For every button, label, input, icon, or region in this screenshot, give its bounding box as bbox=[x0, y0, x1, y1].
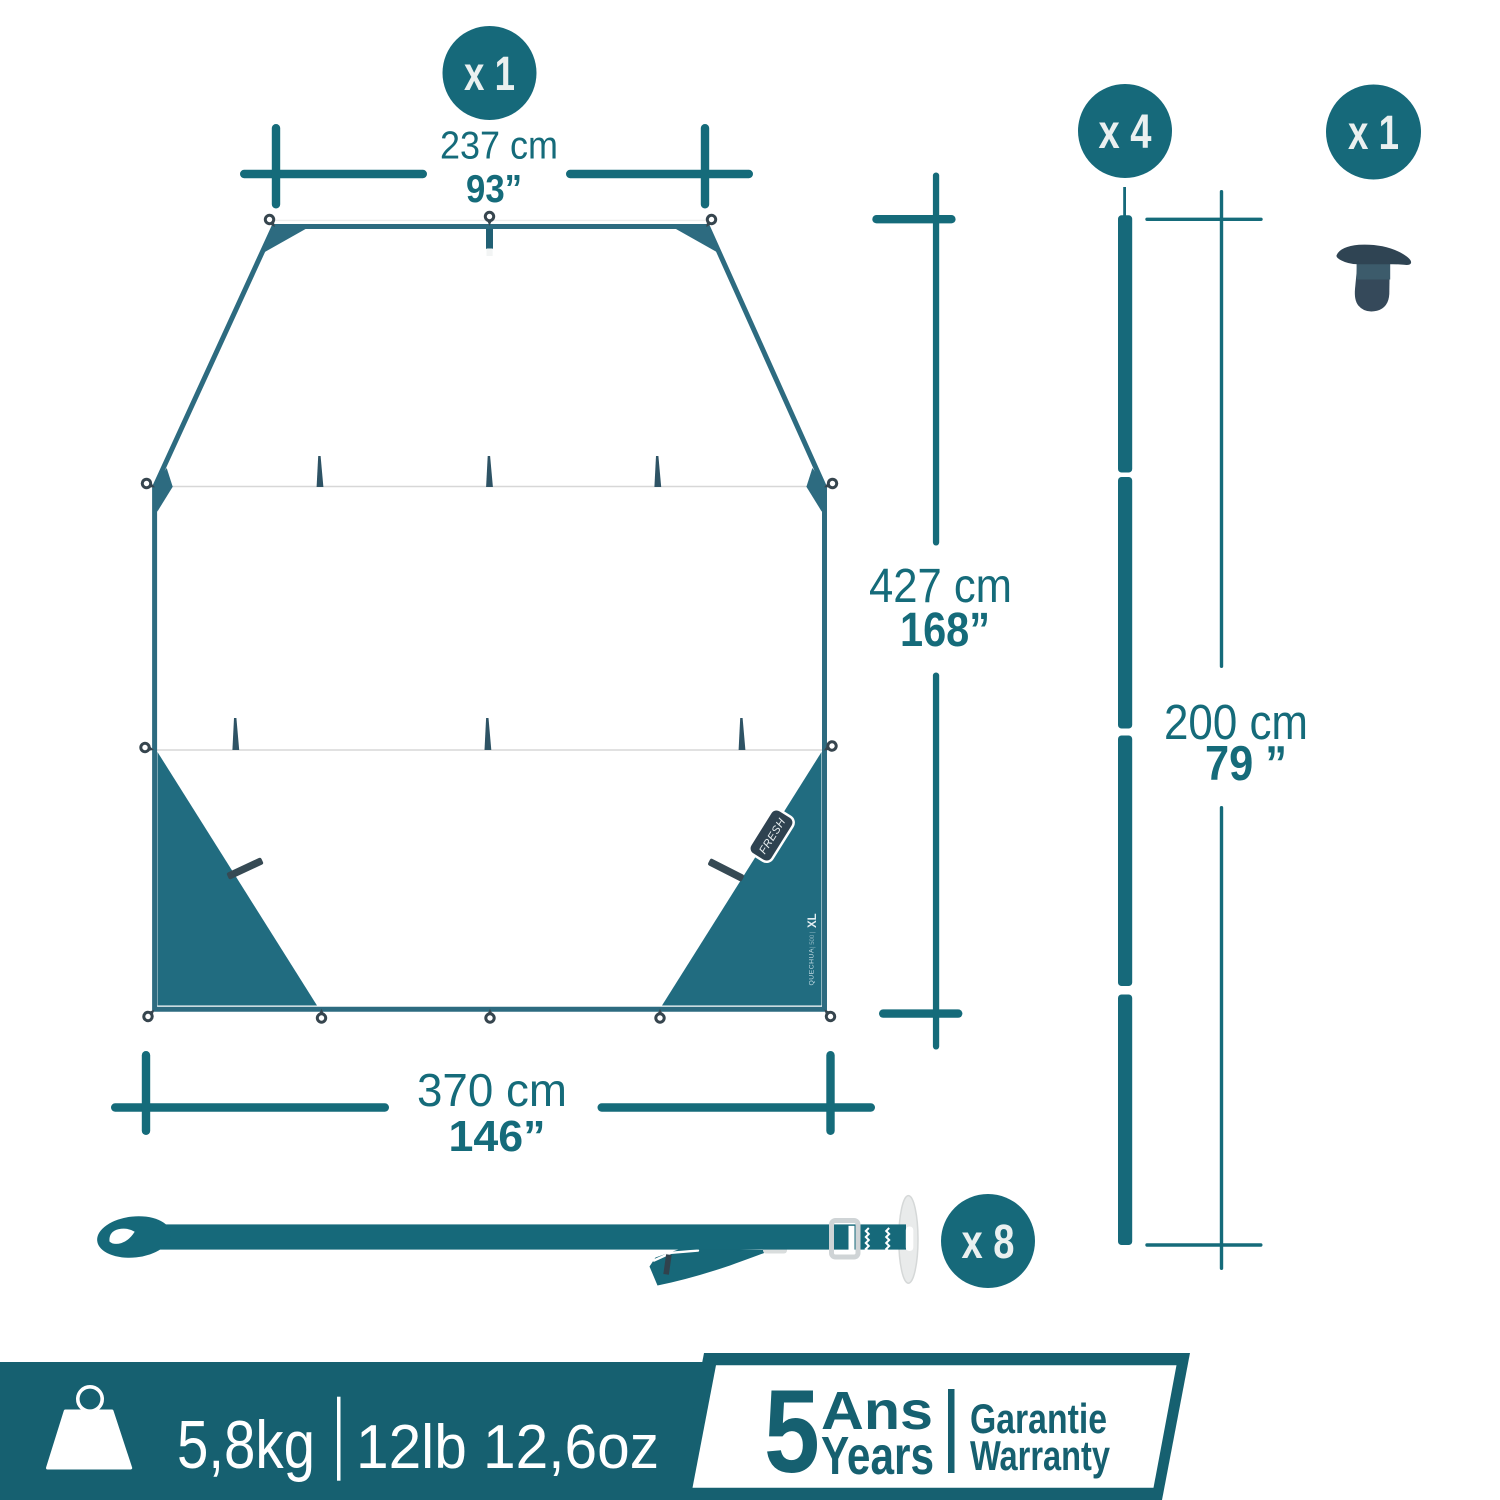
svg-text:370 cm: 370 cm bbox=[417, 1064, 567, 1116]
svg-text:79 ”: 79 ” bbox=[1205, 737, 1287, 791]
svg-text:237 cm: 237 cm bbox=[440, 125, 558, 168]
svg-text:x 8: x 8 bbox=[962, 1216, 1015, 1269]
svg-text:146”: 146” bbox=[449, 1112, 546, 1161]
svg-text:XL: XL bbox=[807, 913, 819, 928]
svg-text:x 1: x 1 bbox=[464, 48, 515, 101]
svg-text:168”: 168” bbox=[900, 604, 990, 657]
svg-text:QUECHUA: QUECHUA bbox=[809, 948, 816, 986]
svg-text:12lb 12,6oz: 12lb 12,6oz bbox=[356, 1413, 659, 1482]
svg-text:x 4: x 4 bbox=[1099, 106, 1152, 159]
svg-text:Warranty: Warranty bbox=[970, 1432, 1110, 1479]
svg-text:x 1: x 1 bbox=[1348, 107, 1399, 160]
svg-text:Years: Years bbox=[821, 1426, 934, 1486]
svg-text:5,8kg: 5,8kg bbox=[177, 1407, 315, 1483]
svg-text:93”: 93” bbox=[466, 168, 522, 211]
svg-text:5: 5 bbox=[764, 1366, 820, 1497]
svg-text:| 500 |: | 500 | bbox=[810, 931, 816, 948]
